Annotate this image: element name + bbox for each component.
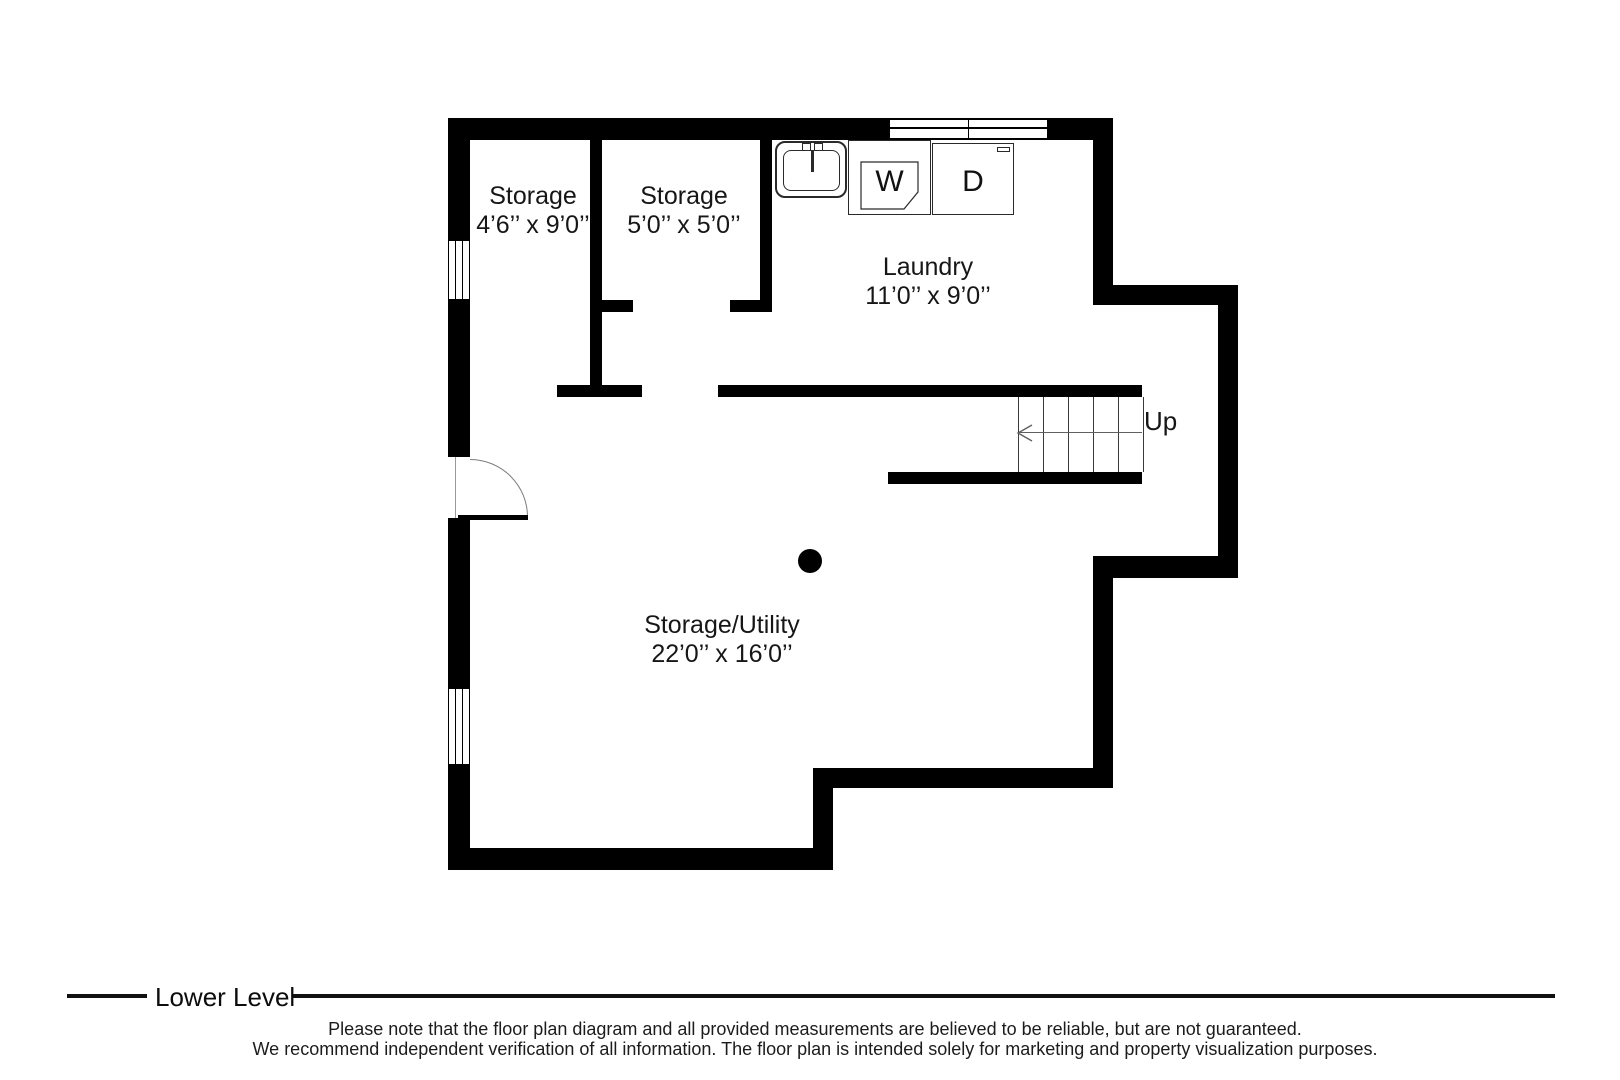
room-label-storage-utility: Storage/Utility 22’0’’ x 16’0’’ xyxy=(592,611,852,669)
sink-faucet-handle-right xyxy=(814,143,823,151)
level-rule-right xyxy=(293,994,1555,998)
stair-tread xyxy=(1118,397,1119,472)
washer-label: W xyxy=(848,165,931,199)
up-text: Up xyxy=(1144,406,1177,436)
room-label-storage-2: Storage 5’0’’ x 5’0’’ xyxy=(594,182,774,240)
wall-top-left xyxy=(448,118,890,140)
floor-plan-canvas: Up W D Storage 4’6’’ x 9’0’’ Storage 5’0… xyxy=(0,0,1620,1080)
window-icon-left-lower xyxy=(448,688,470,765)
sink-faucet-stem xyxy=(811,151,814,172)
room-dims: 5’0’’ x 5’0’’ xyxy=(594,211,774,240)
wall-jog-mid xyxy=(1093,556,1238,578)
wall-right-outer xyxy=(1218,285,1238,578)
room-name: Storage xyxy=(594,182,774,211)
disclaimer: Please note that the floor plan diagram … xyxy=(110,1019,1520,1059)
wall-storage2-door-stub-right xyxy=(730,300,760,312)
wall-left-2 xyxy=(448,300,470,457)
wall-right-upper xyxy=(1093,118,1113,305)
washer-letter: W xyxy=(875,165,903,198)
wall-storage-divider xyxy=(590,140,602,397)
door-swing-icon xyxy=(470,459,528,517)
disclaimer-line-1: Please note that the floor plan diagram … xyxy=(110,1019,1520,1039)
door-opening-edge xyxy=(455,457,456,518)
room-name: Storage/Utility xyxy=(592,611,852,640)
stairs-up-arrow-icon xyxy=(1014,423,1034,443)
dryer-label: D xyxy=(932,165,1014,199)
stair-tread xyxy=(1093,397,1094,472)
window-icon-top xyxy=(890,118,1047,140)
window-icon-left-upper xyxy=(448,240,470,300)
wall-stairs-top xyxy=(718,385,1142,397)
wall-left-4 xyxy=(448,765,470,870)
room-dims: 22’0’’ x 16’0’’ xyxy=(592,640,852,669)
room-dims: 11’0’’ x 9’0’’ xyxy=(838,282,1018,311)
stairs-up-label: Up xyxy=(1144,407,1204,436)
wall-right-lower xyxy=(1093,556,1113,788)
wall-jog-top xyxy=(1093,285,1238,305)
level-rule-left xyxy=(67,994,147,998)
stairs xyxy=(1018,397,1144,472)
wall-storage2-door-stub-left xyxy=(602,300,633,312)
stair-tread xyxy=(1068,397,1069,472)
room-name: Laundry xyxy=(838,253,1018,282)
room-label-laundry: Laundry 11’0’’ x 9’0’’ xyxy=(838,253,1018,311)
dryer-letter: D xyxy=(962,165,984,198)
dryer-handle xyxy=(997,147,1010,152)
stairs-arrow-shaft xyxy=(1018,432,1142,433)
level-title: Lower Level xyxy=(155,982,295,1013)
wall-stairs-bottom xyxy=(888,472,1142,484)
wall-bottom-jog xyxy=(813,768,1113,788)
wall-bottom xyxy=(448,848,833,870)
wall-left-3 xyxy=(448,518,470,688)
disclaimer-line-2: We recommend independent verification of… xyxy=(110,1039,1520,1059)
column-dot-icon xyxy=(798,549,822,573)
level-title-text: Lower Level xyxy=(155,982,295,1012)
door-leaf xyxy=(458,515,528,520)
stair-tread xyxy=(1043,397,1044,472)
sink-faucet-handle-left xyxy=(802,143,811,151)
wall-divider-cap xyxy=(557,385,642,397)
